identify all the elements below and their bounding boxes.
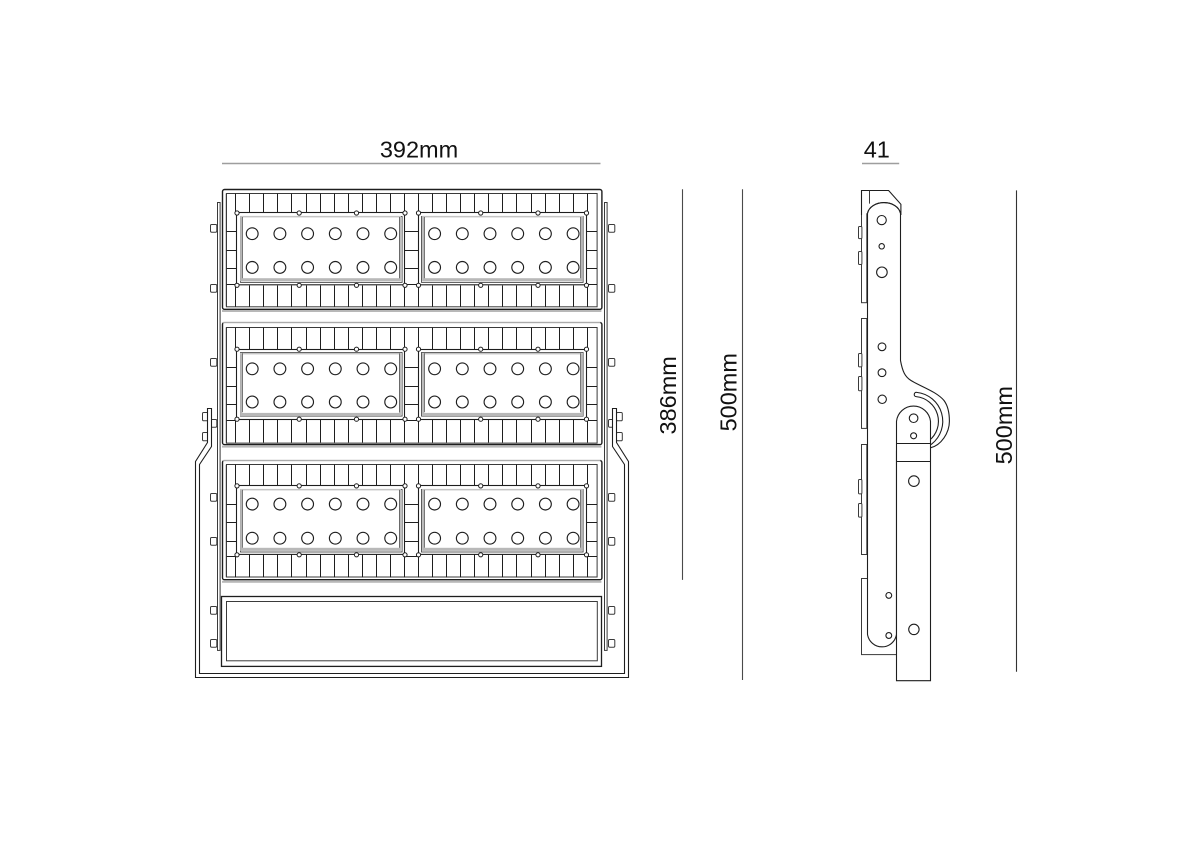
svg-text:41: 41 <box>864 137 890 163</box>
svg-text:386mm: 386mm <box>655 356 681 434</box>
svg-text:500mm: 500mm <box>991 386 1017 464</box>
svg-text:500mm: 500mm <box>716 353 742 431</box>
svg-text:392mm: 392mm <box>380 137 458 163</box>
